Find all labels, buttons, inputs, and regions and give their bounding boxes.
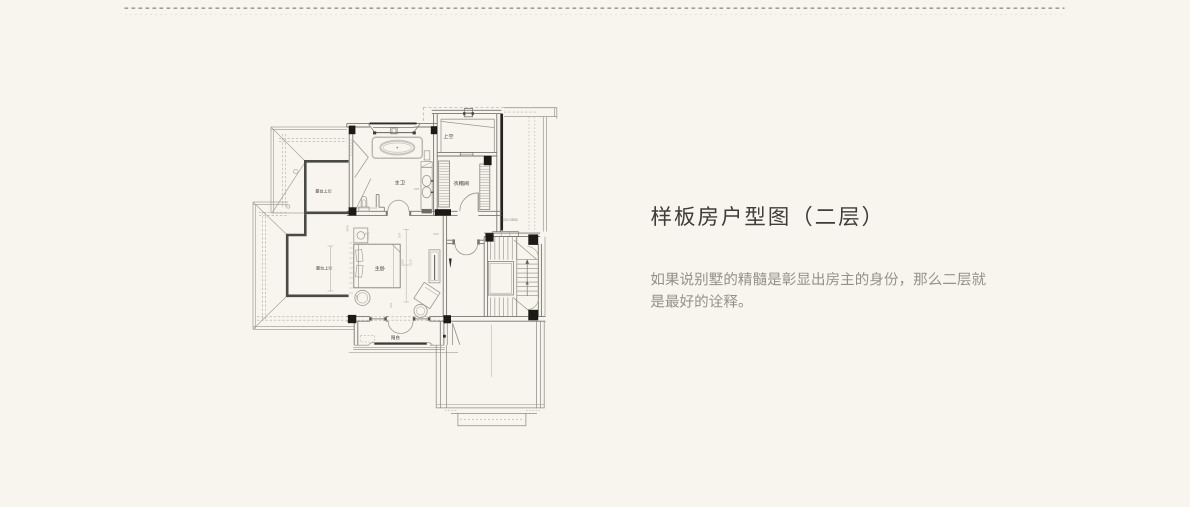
svg-text:4975: 4975 <box>346 225 350 232</box>
svg-text:251: 251 <box>389 303 393 308</box>
svg-text:025: 025 <box>414 187 419 191</box>
svg-text:034: 034 <box>366 234 370 239</box>
svg-text:3110: 3110 <box>409 259 413 266</box>
svg-text:025: 025 <box>434 232 439 236</box>
svg-text:2DC0505: 2DC0505 <box>503 218 518 222</box>
svg-text:5290: 5290 <box>401 259 405 266</box>
svg-text:579: 579 <box>398 233 402 238</box>
svg-text:625: 625 <box>355 295 359 300</box>
